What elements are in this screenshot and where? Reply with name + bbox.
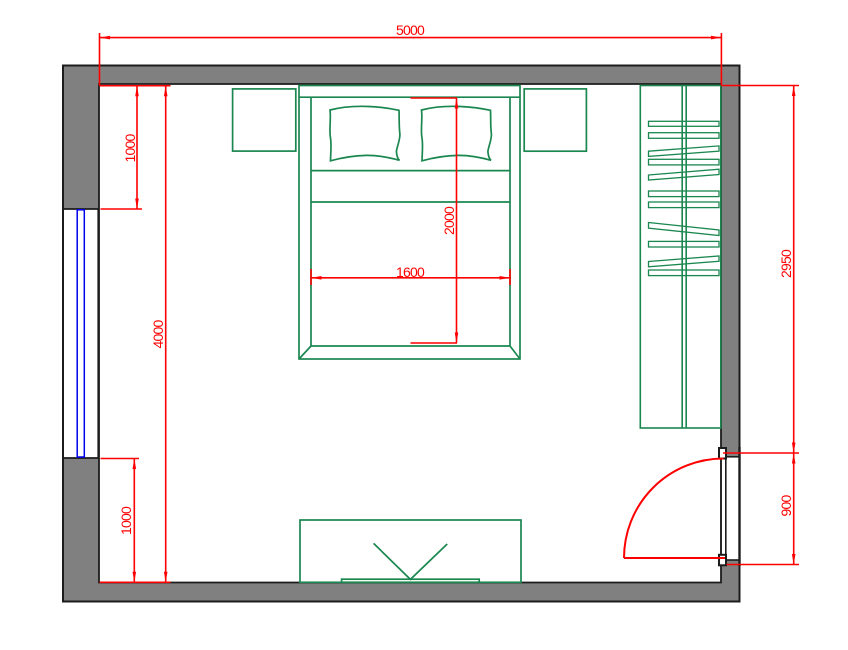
svg-text:1000: 1000	[118, 506, 134, 535]
svg-text:1000: 1000	[122, 134, 138, 163]
svg-text:5000: 5000	[396, 22, 425, 38]
svg-text:1600: 1600	[396, 264, 425, 280]
svg-text:900: 900	[778, 495, 794, 517]
svg-text:4000: 4000	[150, 320, 166, 349]
svg-text:2950: 2950	[778, 249, 794, 278]
svg-text:2000: 2000	[441, 206, 457, 235]
